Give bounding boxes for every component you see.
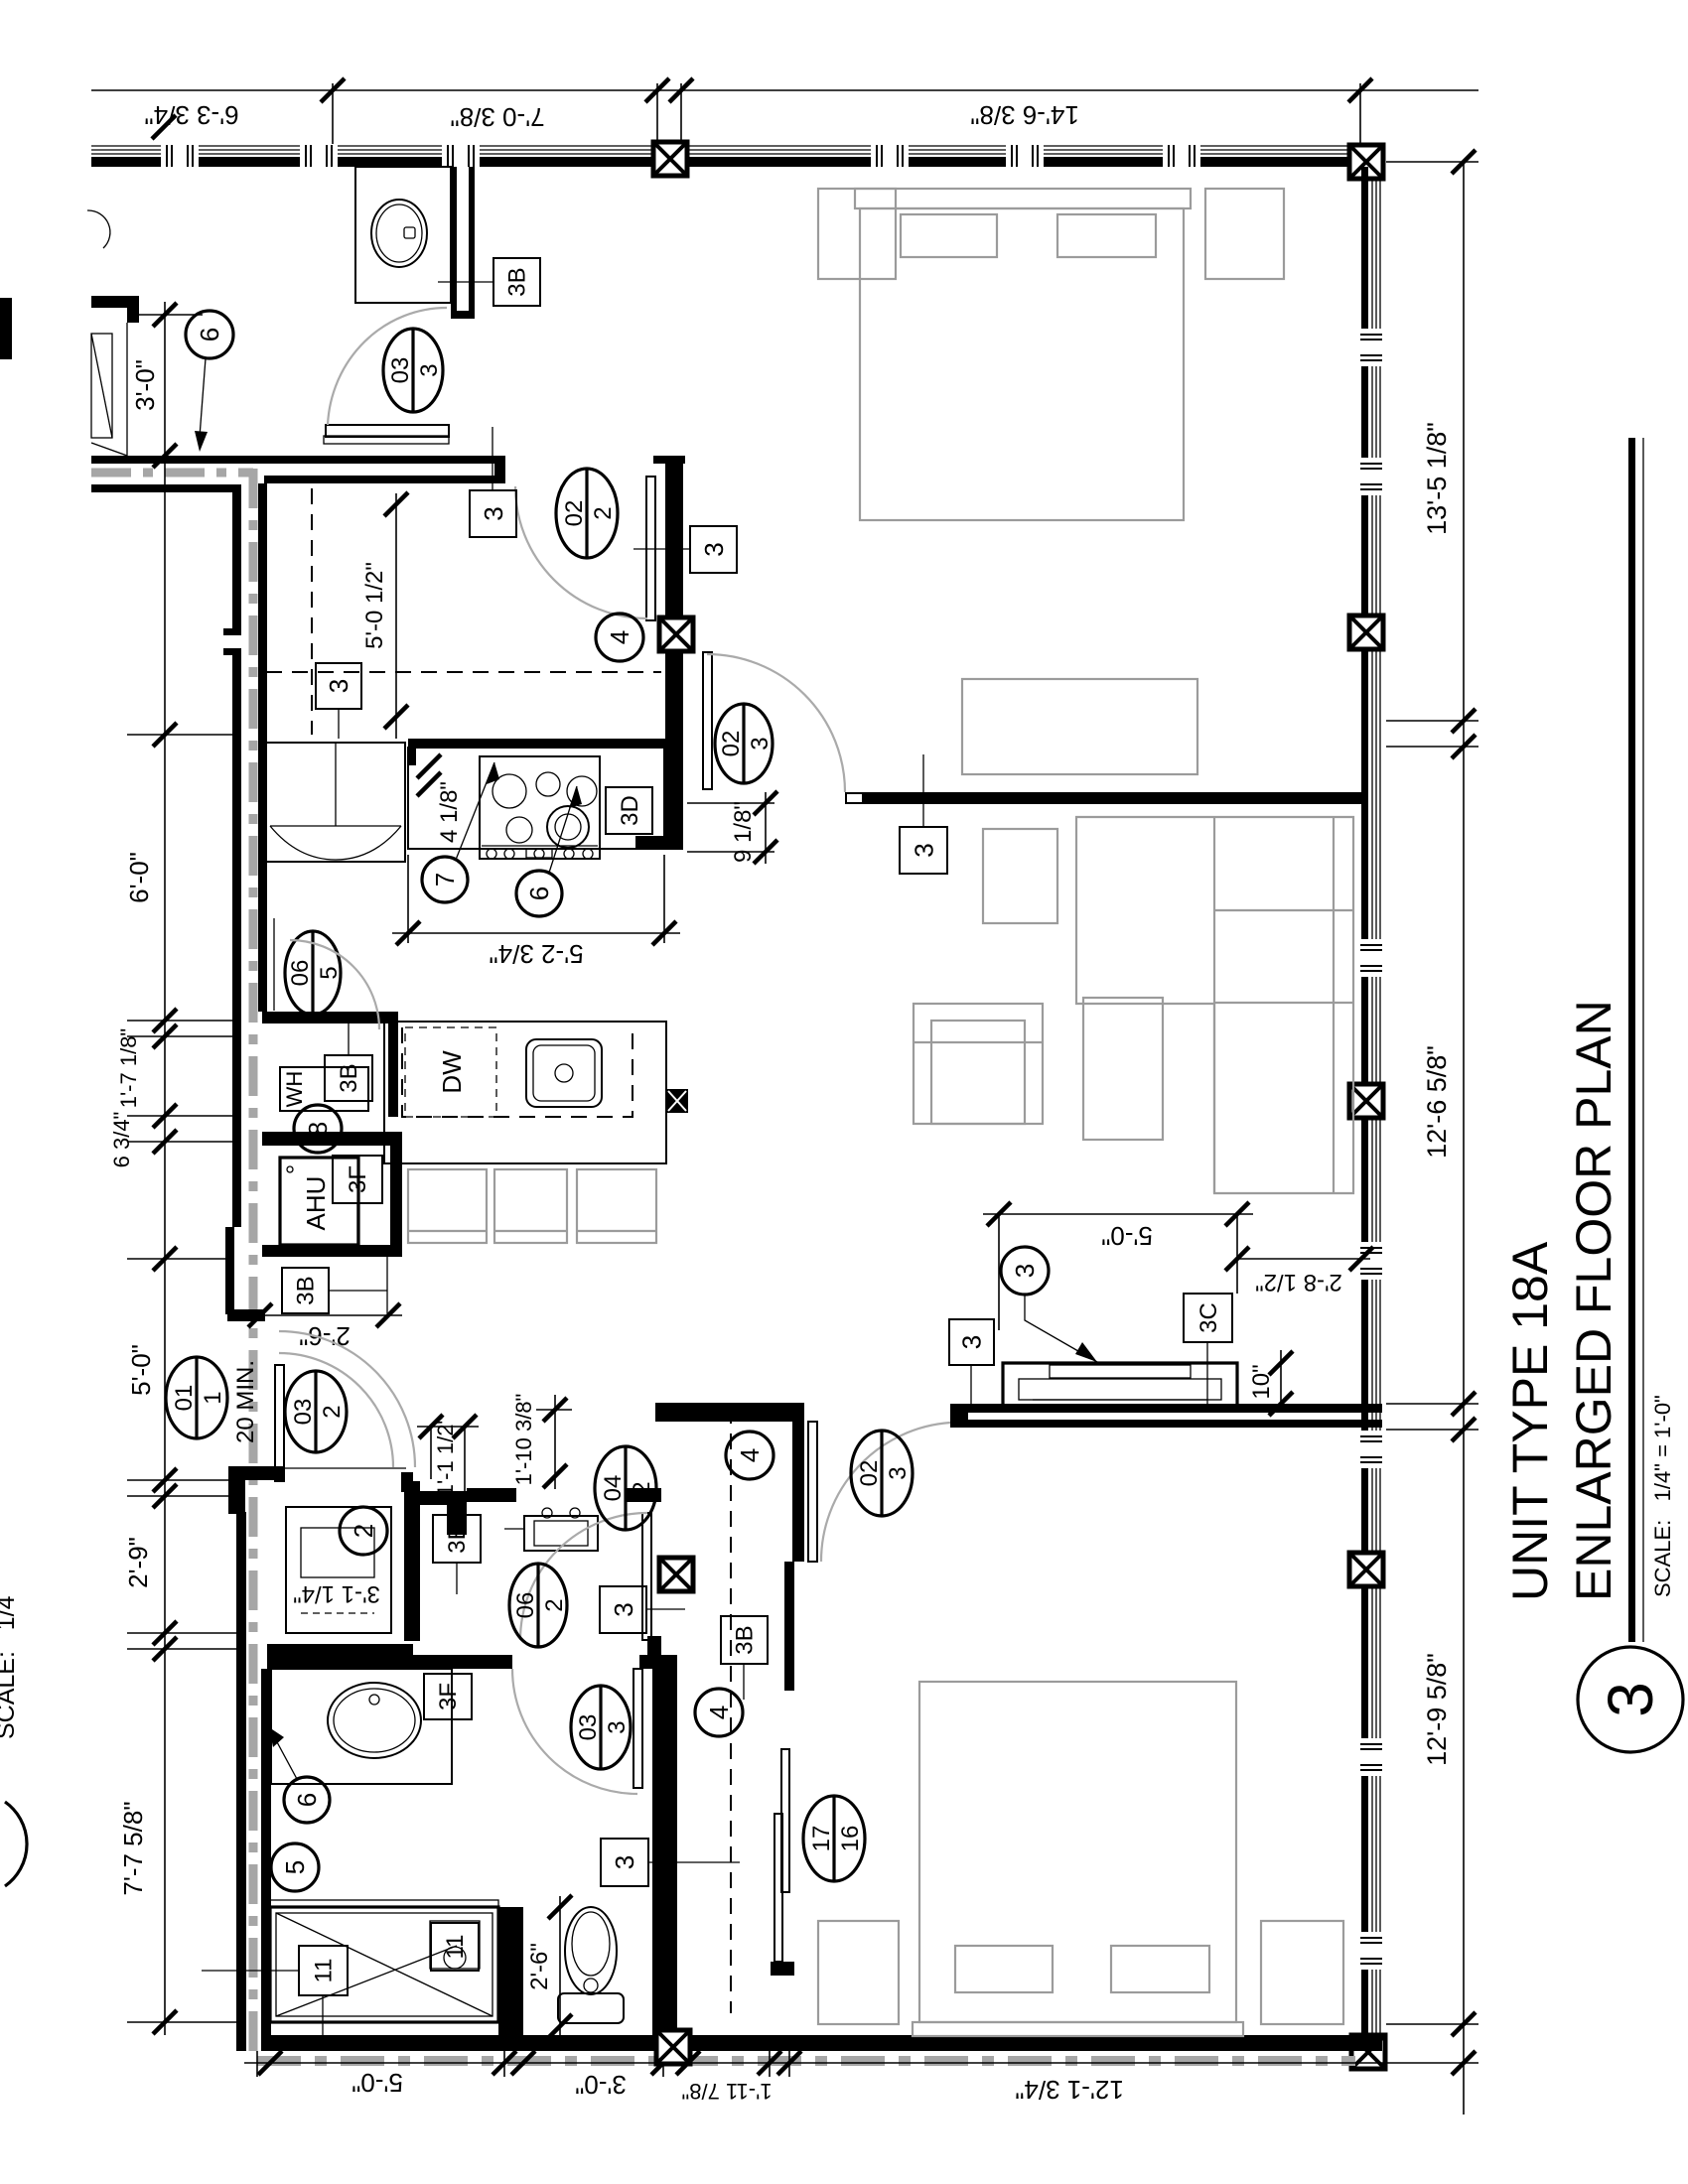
svg-text:5'-0 1/2": 5'-0 1/2" [361,562,388,649]
svg-text:13'-5 1/8": 13'-5 1/8" [1422,422,1452,535]
svg-text:17: 17 [808,1826,835,1852]
svg-text:5: 5 [316,966,343,979]
svg-text:ENLARGED FLOOR PLAN: ENLARGED FLOOR PLAN [1566,1000,1621,1601]
svg-text:12'-6 5/8": 12'-6 5/8" [1422,1045,1452,1159]
svg-text:2'-8 1/2": 2'-8 1/2" [1255,1269,1342,1296]
svg-text:6: 6 [524,887,554,900]
svg-text:3F: 3F [435,1683,462,1710]
svg-text:06: 06 [512,1592,539,1619]
svg-text:3: 3 [1595,1682,1666,1717]
svg-text:12'-9 5/8": 12'-9 5/8" [1422,1653,1452,1766]
svg-text:3B: 3B [732,1625,759,1654]
svg-text:06: 06 [287,960,314,987]
svg-text:3'-1 1/4": 3'-1 1/4" [293,1580,380,1607]
svg-text:3: 3 [604,1720,631,1733]
svg-text:2'-9": 2'-9" [123,1537,153,1588]
svg-text:03: 03 [387,357,414,384]
svg-text:3: 3 [609,1602,638,1616]
svg-text:2: 2 [319,1405,346,1418]
svg-text:3'-0": 3'-0" [575,2070,627,2100]
svg-text:3: 3 [747,737,774,750]
svg-text:2: 2 [541,1598,568,1611]
svg-text:1'-1 1/2": 1'-1 1/2" [433,1417,458,1497]
svg-text:3: 3 [1010,1264,1040,1278]
svg-text:3B: 3B [444,1524,471,1553]
svg-text:1'-11 7/8": 1'-11 7/8" [681,2079,772,2104]
svg-text:2: 2 [629,1481,655,1494]
svg-text:16: 16 [837,1826,864,1852]
svg-text:12'-1 3/4": 12'-1 3/4" [1015,2075,1124,2105]
svg-text:2: 2 [349,1524,378,1538]
svg-text:02: 02 [718,731,745,757]
svg-text:5'-0": 5'-0" [352,2068,403,2098]
svg-text:3C: 3C [1196,1302,1222,1333]
svg-text:1'-7 1/8": 1'-7 1/8" [116,1028,141,1109]
svg-text:UNIT TYPE 18A: UNIT TYPE 18A [1502,1241,1558,1601]
svg-text:6'-0": 6'-0" [124,852,154,903]
svg-text:5: 5 [280,1860,310,1874]
svg-text:04: 04 [600,1475,627,1502]
svg-text:WH: WH [282,1071,307,1108]
svg-text:3'-0": 3'-0" [130,359,160,411]
svg-text:6 3/4": 6 3/4" [109,1112,134,1168]
svg-text:7'-0 3/8": 7'-0 3/8" [450,102,544,132]
svg-text:AHU: AHU [301,1176,331,1231]
svg-text:11: 11 [311,1959,338,1983]
svg-text:3B: 3B [504,267,531,296]
svg-text:7'-7 5/8": 7'-7 5/8" [118,1801,148,1895]
svg-text:3: 3 [699,542,729,556]
svg-text:SCALE: 1/4: SCALE: 1/4 [0,1595,20,1739]
svg-text:4 1/8": 4 1/8" [436,781,463,843]
svg-text:8: 8 [303,1122,333,1136]
svg-text:3B: 3B [293,1276,320,1304]
svg-text:5'-0": 5'-0" [126,1344,156,1396]
svg-text:6: 6 [195,328,224,341]
svg-text:3: 3 [479,506,508,520]
svg-text:SCALE: 1/4" = 1'-0": SCALE: 1/4" = 1'-0" [1650,1395,1675,1597]
svg-text:02: 02 [561,500,588,527]
svg-text:6'-3 3/4": 6'-3 3/4" [144,100,238,130]
svg-text:3D: 3D [617,795,643,826]
svg-text:11: 11 [442,1935,469,1960]
svg-text:3: 3 [910,843,939,857]
svg-text:3: 3 [416,363,443,376]
svg-text:3: 3 [957,1335,987,1349]
svg-text:4: 4 [605,630,634,644]
svg-text:5'-2 3/4": 5'-2 3/4" [489,939,583,969]
svg-text:03: 03 [290,1399,317,1426]
svg-text:01: 01 [171,1385,198,1412]
svg-text:20 MIN.: 20 MIN. [232,1360,259,1443]
svg-text:4: 4 [735,1448,765,1462]
svg-text:3F: 3F [345,1165,371,1193]
svg-text:6: 6 [292,1793,322,1807]
svg-text:2'-6": 2'-6" [526,1943,553,1990]
svg-text:02: 02 [856,1460,883,1487]
svg-text:1'-10 3/8": 1'-10 3/8" [511,1394,536,1486]
svg-text:2: 2 [590,506,617,519]
svg-text:3: 3 [885,1466,912,1479]
svg-text:5'-0": 5'-0" [1101,1221,1153,1251]
svg-text:3: 3 [610,1855,639,1869]
svg-text:14'-6 3/8": 14'-6 3/8" [970,100,1079,130]
svg-text:10": 10" [1248,1364,1275,1399]
svg-text:3B: 3B [336,1063,362,1092]
svg-text:DW: DW [437,1050,467,1094]
svg-text:03: 03 [575,1714,602,1741]
svg-text:7: 7 [430,873,460,887]
svg-text:4: 4 [704,1706,734,1719]
svg-text:3: 3 [324,679,353,693]
svg-text:9 1/8": 9 1/8" [730,801,757,863]
svg-text:1: 1 [200,1391,226,1404]
